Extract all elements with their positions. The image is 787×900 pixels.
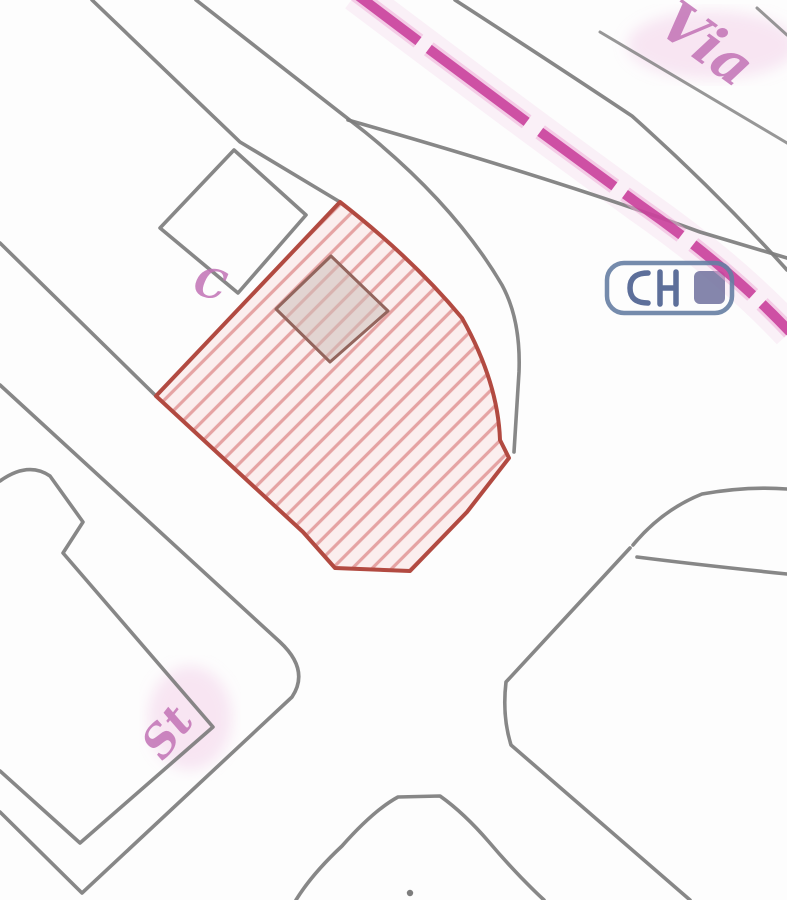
blue-symbol-h-glyph-icon (660, 272, 676, 304)
point-marker (407, 890, 413, 896)
road-edge-upper-left-a (92, 0, 340, 202)
west-parcel-notched-boundary (0, 470, 213, 843)
highlighted-parcel-group (156, 202, 509, 571)
east-junction-lower-edge (637, 557, 787, 574)
west-diagonal-line (0, 243, 156, 396)
map-canvas: Via St C (0, 0, 787, 900)
blue-symbol-c-glyph-icon (630, 273, 648, 303)
blue-boxed-symbol (630, 271, 725, 304)
east-junction-upper-edge (633, 488, 787, 545)
parcel-letter-label: C (190, 258, 231, 311)
southeast-road-left-edge (505, 548, 690, 900)
cadastral-map: Via St C (0, 0, 787, 900)
bottom-junction-arch (296, 796, 544, 900)
